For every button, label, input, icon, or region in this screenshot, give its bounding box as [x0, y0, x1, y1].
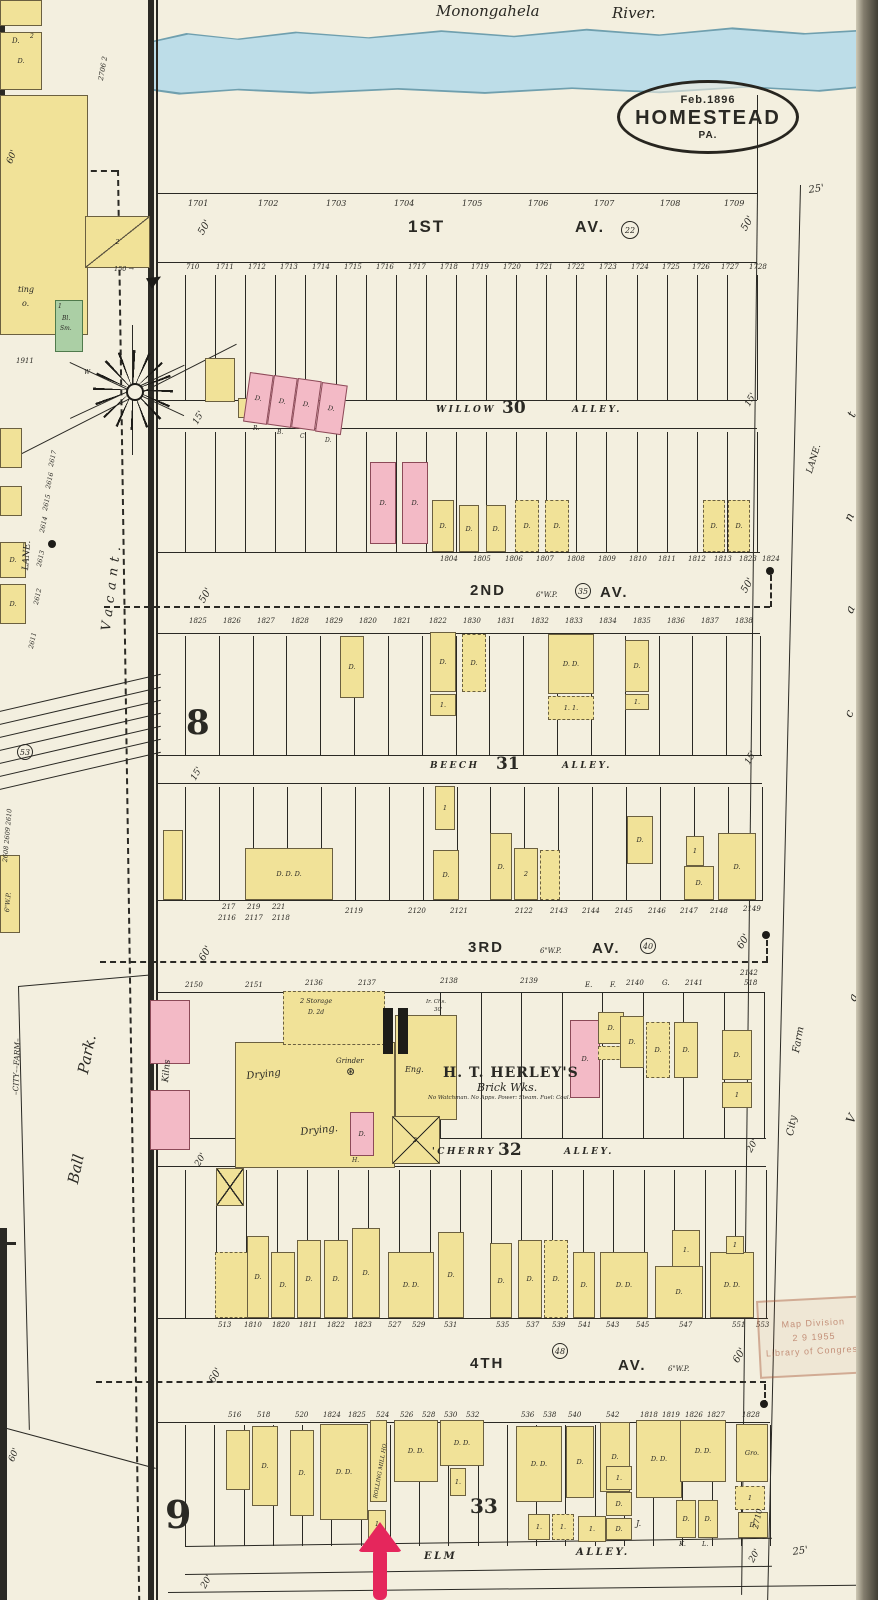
lot-line	[659, 636, 660, 755]
map-label: 33	[470, 1496, 498, 1516]
building-label: 2	[115, 238, 119, 246]
map-label: 1829	[325, 618, 343, 625]
map-label: 2615	[42, 494, 52, 512]
building: 1.	[672, 1230, 700, 1270]
building: D. D.	[388, 1252, 434, 1318]
building: D.	[625, 640, 649, 692]
map-label: 527	[388, 1322, 401, 1329]
lot-line	[592, 787, 593, 900]
lot-line	[219, 636, 220, 755]
map-label: 1706	[528, 200, 548, 208]
map-label: 20'	[748, 1548, 763, 1565]
map-title-badge: Feb.1896 HOMESTEAD PA.	[617, 80, 799, 154]
building-label: 1.	[634, 698, 640, 706]
map-label: BEECH	[430, 762, 480, 771]
map-label: 1728	[749, 264, 767, 271]
building-label: D.	[710, 522, 717, 530]
map-label: 6"W.P.	[4, 892, 12, 912]
map-label: 3RD	[468, 940, 504, 955]
map-label: W	[84, 370, 90, 376]
map-label: 1718	[440, 264, 458, 271]
building: D.	[459, 505, 479, 552]
map-label: D.	[12, 38, 20, 45]
map-label: 1821	[393, 618, 411, 625]
map-label: 541	[578, 1322, 591, 1329]
building-label: D.	[497, 1277, 504, 1285]
building-label: D.	[553, 522, 560, 530]
street-number-badge: 35	[575, 583, 591, 599]
building-label: D.	[607, 1024, 614, 1032]
building-label: D.	[615, 1500, 622, 1508]
lot-line	[486, 275, 487, 400]
map-label: 1723	[599, 264, 617, 271]
boundary-line	[0, 674, 161, 713]
map-label: 1837	[701, 618, 719, 625]
building: D.	[430, 632, 456, 692]
map-label: 531	[444, 1322, 457, 1329]
lot-line	[757, 275, 758, 400]
map-label: 219	[247, 904, 260, 911]
survey-dot	[766, 567, 774, 575]
map-label: 518	[257, 1412, 270, 1419]
map-label: 1721	[535, 264, 553, 271]
map-label: 'CHERRY	[432, 1148, 496, 1157]
map-label: 2149	[743, 906, 761, 913]
annotation-arrow-shaft	[373, 1548, 387, 1600]
map-label: Sm.	[60, 326, 72, 332]
map-label: 9	[165, 1496, 191, 1534]
map-label: 2140	[626, 980, 644, 987]
map-label: ALLEY.	[564, 1148, 614, 1157]
building-label: 1	[748, 1494, 752, 1502]
map-label: 60'	[732, 1347, 748, 1365]
lot-line	[422, 636, 423, 755]
lot-line	[576, 432, 577, 552]
building-label: D.	[439, 658, 446, 666]
building-label: 2	[524, 870, 528, 878]
building: 1	[735, 1486, 765, 1510]
lot-line	[245, 275, 246, 400]
building: D.	[606, 1518, 632, 1540]
building: D. D.	[394, 1420, 438, 1482]
map-label: 2151	[245, 982, 263, 989]
map-label: 30	[502, 400, 526, 417]
building-label: 1.	[560, 1523, 566, 1531]
map-label: –CITY––FARM–	[12, 1038, 21, 1095]
building	[0, 95, 88, 335]
lot-line	[606, 432, 607, 552]
map-label: 1819	[662, 1412, 680, 1419]
building: 1.	[430, 694, 456, 716]
map-label: 1830	[463, 618, 481, 625]
map-label: D.	[325, 438, 332, 444]
map-label: 1820	[359, 618, 377, 625]
street-number-badge: 48	[552, 1343, 568, 1359]
boundary-line	[158, 900, 763, 901]
building-label: D.	[17, 57, 24, 65]
building-label: D.	[497, 863, 504, 871]
map-label: 1708	[660, 200, 680, 208]
map-label: 2137	[358, 980, 376, 987]
building: D.	[703, 500, 725, 552]
map-label: C.	[300, 434, 306, 440]
building-label: D.	[470, 659, 477, 667]
building: D. D.	[680, 1420, 726, 1482]
building-label: D. D.	[695, 1447, 711, 1455]
map-label: L.	[702, 1541, 708, 1548]
lot-line	[637, 432, 638, 552]
building-label: D.	[576, 1458, 583, 1466]
building: D.	[573, 1252, 595, 1318]
lot-line	[764, 992, 765, 1138]
map-label: 528	[422, 1412, 435, 1419]
building: D.	[490, 833, 512, 900]
lot-line	[219, 787, 220, 900]
lot-line	[516, 275, 517, 400]
map-label: c	[842, 708, 856, 719]
lot-line	[245, 432, 246, 552]
map-label: 2617	[48, 450, 58, 468]
map-label: 1818	[640, 1412, 658, 1419]
building: 1.	[552, 1514, 574, 1540]
building-label: D. D.	[724, 1281, 740, 1289]
map-label: 1719	[471, 264, 489, 271]
map-label: 1707	[594, 200, 614, 208]
map-label: 2122	[515, 908, 533, 915]
lot-line	[660, 787, 661, 900]
map-label: 15'	[192, 410, 207, 427]
building: Gro.	[736, 1424, 768, 1482]
building	[0, 486, 22, 516]
map-label: 32	[498, 1142, 522, 1159]
map-label: 4TH	[470, 1356, 504, 1371]
map-label: 2616	[45, 472, 55, 490]
lot-line	[214, 1425, 215, 1546]
map-label: 1823	[354, 1322, 372, 1329]
building: D.	[674, 1022, 698, 1078]
sanborn-map-homestead: Monongahela River. Feb.1896 HOMESTEAD PA…	[0, 0, 878, 1600]
badge-date: Feb.1896	[680, 94, 735, 106]
building: D. D. D.	[245, 848, 333, 900]
lot-line	[705, 1170, 706, 1318]
building: D. D.	[600, 1252, 648, 1318]
map-label: Farm	[792, 1026, 806, 1054]
building	[0, 428, 22, 468]
building-label: D.	[580, 1281, 587, 1289]
map-label: 2119	[345, 908, 363, 915]
map-label: 1717	[408, 264, 426, 271]
map-label: B.	[277, 430, 283, 436]
building-label: D.	[633, 662, 640, 670]
building: 1. 1.	[548, 696, 594, 720]
boundary-line	[158, 193, 757, 194]
lot-line	[286, 636, 287, 755]
map-label: 536	[521, 1412, 534, 1419]
building	[226, 1430, 250, 1490]
lot-line	[727, 275, 728, 400]
map-label: E.	[585, 982, 592, 989]
map-label: G.	[662, 980, 670, 987]
building: 2	[514, 848, 538, 900]
map-label: n	[842, 511, 856, 523]
building-label: D.	[411, 499, 418, 507]
building: D.	[646, 1022, 670, 1078]
map-label: 1726	[692, 264, 710, 271]
map-label: 50'	[740, 215, 756, 233]
building-label: D.	[695, 879, 702, 887]
map-label: 60'	[8, 1447, 22, 1463]
building-label: D.	[348, 663, 355, 671]
building-label: D.	[442, 871, 449, 879]
lot-line	[766, 1170, 767, 1318]
map-label: AV.	[600, 585, 629, 600]
building: 1.	[606, 1466, 632, 1490]
lot-line	[426, 275, 427, 400]
map-label: 538	[543, 1412, 556, 1419]
map-label: 1838	[735, 618, 753, 625]
map-label: 1714	[312, 264, 330, 271]
building: D.	[490, 1243, 512, 1318]
stamp-line2: 2 9 1955	[792, 1331, 836, 1343]
stamp-line3: Library of Congress	[766, 1343, 864, 1358]
boundary-line	[18, 974, 152, 987]
street-number-badge: 53	[17, 744, 33, 760]
map-label: 20'	[746, 1138, 761, 1155]
map-label: 2143	[550, 908, 568, 915]
building-label: 1.	[589, 1525, 595, 1533]
survey-dot	[760, 1400, 768, 1408]
building: D.	[718, 833, 756, 900]
map-label: 2613	[36, 550, 46, 568]
building: D.	[486, 505, 506, 552]
lot-line	[667, 275, 668, 400]
map-label: 1832	[531, 618, 549, 625]
boundary-line-dashed	[770, 575, 772, 607]
building	[283, 991, 385, 1045]
boundary-line	[757, 95, 758, 193]
building-label: D.	[735, 522, 742, 530]
river-title-word1: Monongahela	[436, 4, 540, 19]
map-label: 1809	[598, 556, 616, 563]
building: D.	[606, 1492, 632, 1516]
building-label: D.	[254, 1273, 261, 1281]
building-label: D. D.	[531, 1460, 547, 1468]
lot-line	[507, 1425, 508, 1546]
map-label: 2120	[408, 908, 426, 915]
map-label: Park.	[76, 1033, 99, 1075]
map-label: 217	[222, 904, 235, 911]
building: D.	[271, 1252, 295, 1318]
map-label: 1807	[536, 556, 554, 563]
map-label: 1836	[667, 618, 685, 625]
map-label: 1826	[685, 1412, 703, 1419]
building-label: 1.	[683, 1246, 689, 1254]
lot-line	[320, 636, 321, 755]
building-label: D.	[581, 1055, 588, 1063]
building: D.	[620, 1016, 644, 1068]
map-label: 1703	[326, 200, 346, 208]
lot-line	[275, 432, 276, 552]
map-label: J.	[636, 1520, 641, 1528]
stamp-line1: Map Division	[781, 1316, 845, 1329]
building: D. D.	[516, 1426, 562, 1502]
map-label: 1709	[724, 200, 744, 208]
building: D.	[570, 1020, 600, 1098]
map-label: 221	[272, 904, 285, 911]
map-label: ELM	[424, 1552, 457, 1562]
lot-line	[185, 275, 186, 400]
map-label: 1715	[344, 264, 362, 271]
building: 1.	[625, 694, 649, 710]
lot-line	[546, 275, 547, 400]
boundary-line-dashed	[104, 606, 770, 608]
map-label: City	[786, 1115, 799, 1137]
boundary-line	[7, 1428, 156, 1469]
map-label: 2614	[39, 516, 49, 534]
building-label: 1	[693, 847, 697, 855]
building: 1	[722, 1082, 752, 1108]
building-label: D.	[465, 525, 472, 533]
map-label: 2611	[28, 632, 38, 650]
building	[540, 850, 560, 900]
map-label: 537	[526, 1322, 539, 1329]
lot-line	[396, 275, 397, 400]
building	[216, 1168, 244, 1206]
boundary-line	[185, 1566, 772, 1575]
boundary-line	[158, 428, 757, 429]
building: D.	[433, 850, 459, 900]
lot-line	[336, 432, 337, 552]
map-label: 530	[444, 1412, 457, 1419]
building-label: D.	[362, 1269, 369, 1277]
building: D.	[515, 500, 539, 552]
map-label: 529	[412, 1322, 425, 1329]
building-label: D.	[682, 1046, 689, 1054]
map-label: ALLEY.	[572, 406, 622, 415]
building: D.	[698, 1500, 718, 1538]
lot-line	[456, 432, 457, 552]
building: D.	[247, 1236, 269, 1318]
building-label: D.	[636, 836, 643, 844]
building-label: D.	[615, 1525, 622, 1533]
building: D.	[518, 1240, 542, 1318]
building-label: D.	[552, 1275, 559, 1283]
map-label: 1810	[244, 1322, 262, 1329]
lot-line	[726, 636, 727, 755]
building-label: D.	[278, 397, 286, 406]
building: D.	[324, 1240, 348, 1318]
lot-line	[388, 636, 389, 755]
map-label: ALLEY.	[576, 1548, 630, 1558]
map-label: Ball	[66, 1153, 87, 1185]
map-label: 20'	[200, 1574, 215, 1591]
map-label: Vacant.	[100, 540, 124, 632]
map-label: 1820	[272, 1322, 290, 1329]
map-label: 2612	[33, 588, 43, 606]
map-label: 6"W.P.	[668, 1366, 689, 1373]
map-label: 1720	[503, 264, 521, 271]
map-label: a	[843, 604, 857, 616]
map-label: 2 Storage	[300, 998, 332, 1005]
map-label: 50'	[198, 587, 214, 605]
building-label: D.	[302, 400, 310, 409]
map-label: 1ST	[408, 218, 445, 235]
building-label: 1. 1.	[564, 704, 578, 712]
map-label: 1722	[567, 264, 585, 271]
lot-line	[523, 636, 524, 755]
map-label: Grinder	[336, 1058, 364, 1065]
building: 1.	[450, 1468, 466, 1496]
map-label: 551	[732, 1322, 745, 1329]
lot-line	[667, 432, 668, 552]
map-label: 524	[376, 1412, 389, 1419]
building-label: D.	[261, 1462, 268, 1470]
map-label: 1712	[248, 264, 266, 271]
map-label: ⊛	[346, 1066, 355, 1077]
building-label: D. D.	[563, 660, 579, 668]
building: D.	[627, 816, 653, 864]
map-label: 513	[218, 1322, 231, 1329]
map-label: 1813	[714, 556, 732, 563]
building-label: D.	[733, 1051, 740, 1059]
building-label: 1	[735, 1091, 739, 1099]
map-label: R.	[253, 426, 259, 432]
map-label: ting	[18, 286, 34, 294]
boundary-line	[158, 755, 762, 756]
map-label: Kilns	[162, 1059, 173, 1083]
map-label: 1827	[707, 1412, 725, 1419]
building-label: D.	[279, 1281, 286, 1289]
lot-line	[456, 275, 457, 400]
badge-city: HOMESTEAD	[635, 107, 781, 130]
map-label: 2146	[648, 908, 666, 915]
map-label: 1833	[565, 618, 583, 625]
map-label: 1828	[742, 1412, 760, 1419]
building-label: D.	[9, 556, 16, 564]
building	[0, 0, 42, 26]
building-label: D.	[492, 525, 499, 533]
boundary-line	[156, 0, 158, 1600]
map-label: 2145	[615, 908, 633, 915]
map-label: 2138	[440, 978, 458, 985]
building-label: D. D.	[336, 1468, 352, 1476]
map-label: H. T. HERLEY'S	[443, 1066, 579, 1080]
building-label: 1	[733, 1241, 737, 1249]
map-label: 2121	[450, 908, 468, 915]
building-label: D.	[704, 1515, 711, 1523]
map-label: Ir. Chs.	[426, 1000, 446, 1006]
building-label: D.	[9, 600, 16, 608]
map-label: 520	[295, 1412, 308, 1419]
map-label: 6"W.P.	[536, 592, 557, 599]
building: D.	[252, 1426, 278, 1506]
map-label: 2141	[685, 980, 703, 987]
building: D.	[402, 462, 428, 544]
map-label: 2116	[218, 915, 236, 922]
building: D.	[340, 636, 364, 698]
map-label: 547	[679, 1322, 692, 1329]
map-label: 1716	[376, 264, 394, 271]
boundary-line	[158, 992, 764, 993]
map-label: 50'	[740, 577, 756, 595]
building: D.	[290, 1430, 314, 1516]
map-label: 1805	[473, 556, 491, 563]
map-label: AV.	[575, 220, 605, 236]
building-label: D.	[439, 522, 446, 530]
building-label: 1	[443, 804, 447, 812]
building: D.	[0, 584, 26, 624]
building: D.	[438, 1232, 464, 1318]
